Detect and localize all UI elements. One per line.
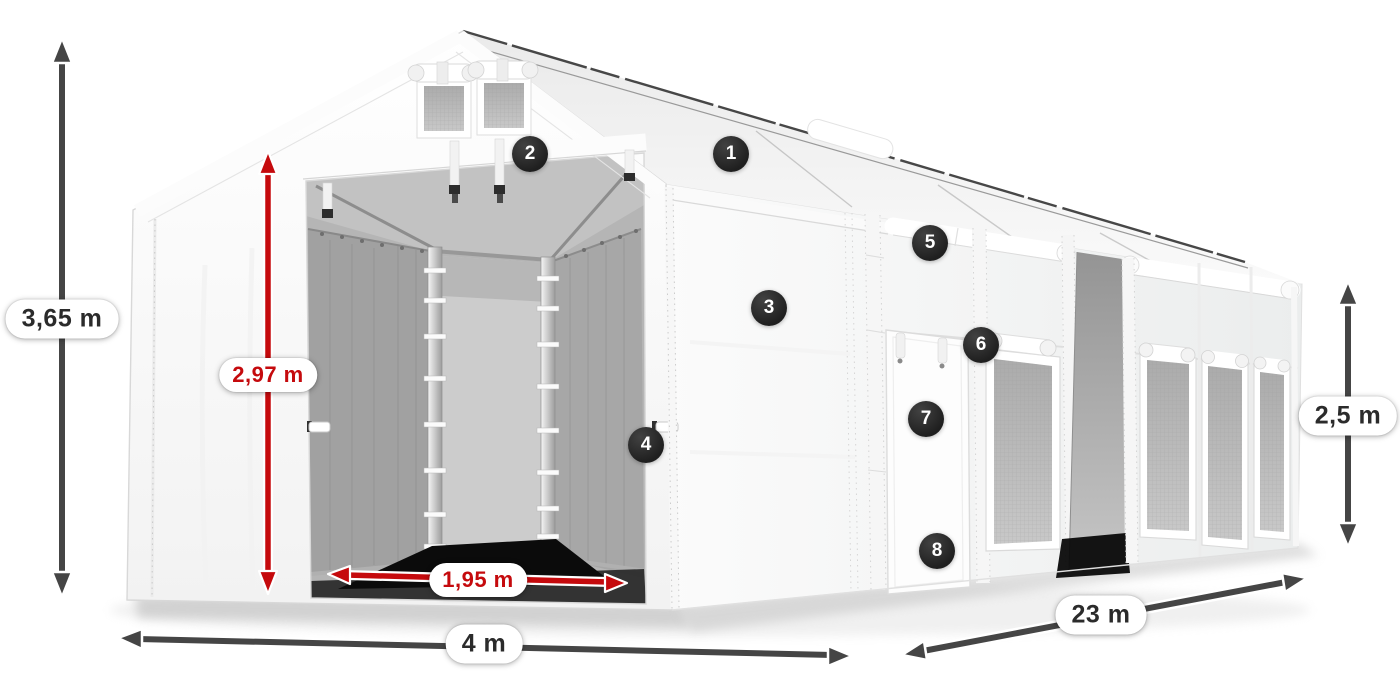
side-window-rear-3	[1254, 357, 1290, 540]
callout-8[interactable]: 8	[919, 533, 955, 569]
side-window-front	[986, 333, 1060, 551]
callout-6[interactable]: 6	[963, 327, 999, 363]
side-window-rear-1	[1139, 343, 1196, 540]
dimension-entrance-height-label: 2,97 m	[219, 358, 317, 392]
dimension-entrance-width-label: 1,95 m	[429, 563, 527, 597]
callout-3[interactable]: 3	[751, 290, 787, 326]
side-window-rear-2	[1202, 351, 1249, 550]
tent-illustration	[0, 0, 1400, 700]
dimension-total-height-label: 3,65 m	[6, 300, 119, 339]
callout-2[interactable]: 2	[512, 136, 548, 172]
gable-vent-right	[468, 59, 538, 135]
callout-1[interactable]: 1	[713, 136, 749, 172]
dimension-side-height-label: 2,5 m	[1299, 397, 1397, 436]
callout-7[interactable]: 7	[908, 401, 944, 437]
callout-4[interactable]: 4	[628, 427, 664, 463]
dimension-width-label: 4 m	[446, 625, 523, 664]
dimension-length-label: 23 m	[1056, 596, 1147, 635]
gable-vent-left	[408, 62, 478, 138]
tent-dimensions-diagram: 3,65 m 2,97 m 1,95 m 4 m 23 m 2,5 m 1 2 …	[0, 0, 1400, 700]
entrance-interior	[300, 140, 652, 610]
door-handle-left	[307, 421, 330, 432]
callout-5[interactable]: 5	[912, 225, 948, 261]
